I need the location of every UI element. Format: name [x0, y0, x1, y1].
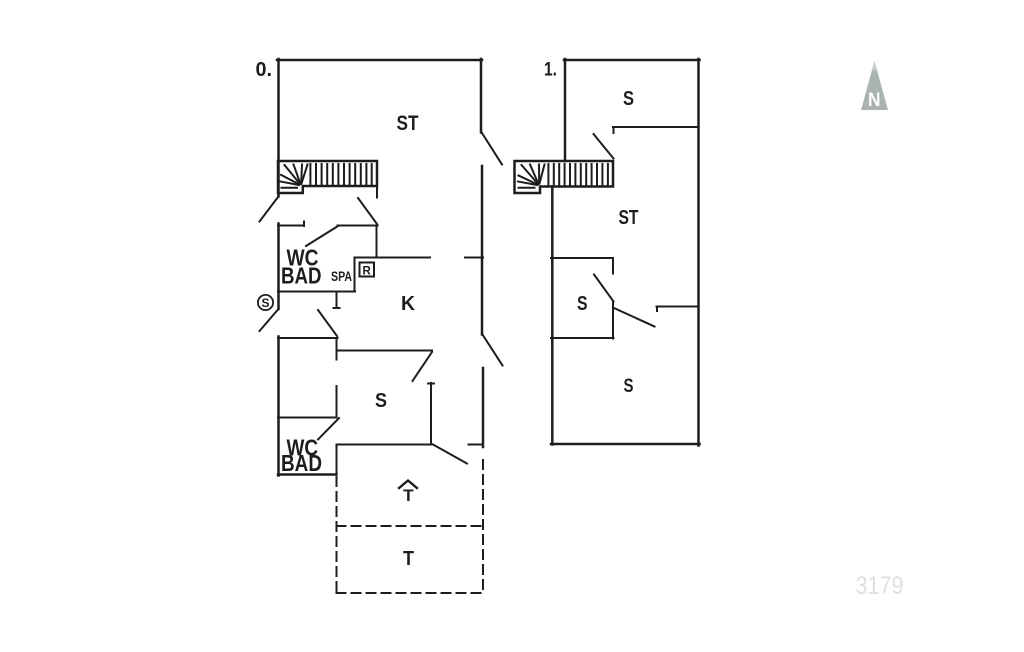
- svg-text:ST: ST: [619, 207, 639, 229]
- svg-text:ST: ST: [397, 112, 419, 135]
- svg-text:S: S: [375, 390, 387, 412]
- svg-text:N: N: [868, 89, 881, 111]
- svg-text:K: K: [401, 293, 416, 315]
- svg-text:S: S: [577, 293, 588, 315]
- svg-text:BAD: BAD: [281, 263, 322, 289]
- svg-text:S: S: [262, 296, 270, 310]
- svg-text:BAD: BAD: [281, 450, 322, 476]
- svg-text:T: T: [403, 548, 414, 570]
- svg-text:T: T: [403, 486, 414, 505]
- svg-text:3179: 3179: [856, 572, 904, 600]
- svg-text:S: S: [623, 88, 634, 110]
- svg-text:0.: 0.: [256, 59, 273, 81]
- svg-text:1.: 1.: [544, 60, 557, 81]
- svg-text:S: S: [624, 376, 634, 397]
- svg-text:SPA: SPA: [331, 269, 352, 284]
- svg-text:R: R: [363, 266, 372, 278]
